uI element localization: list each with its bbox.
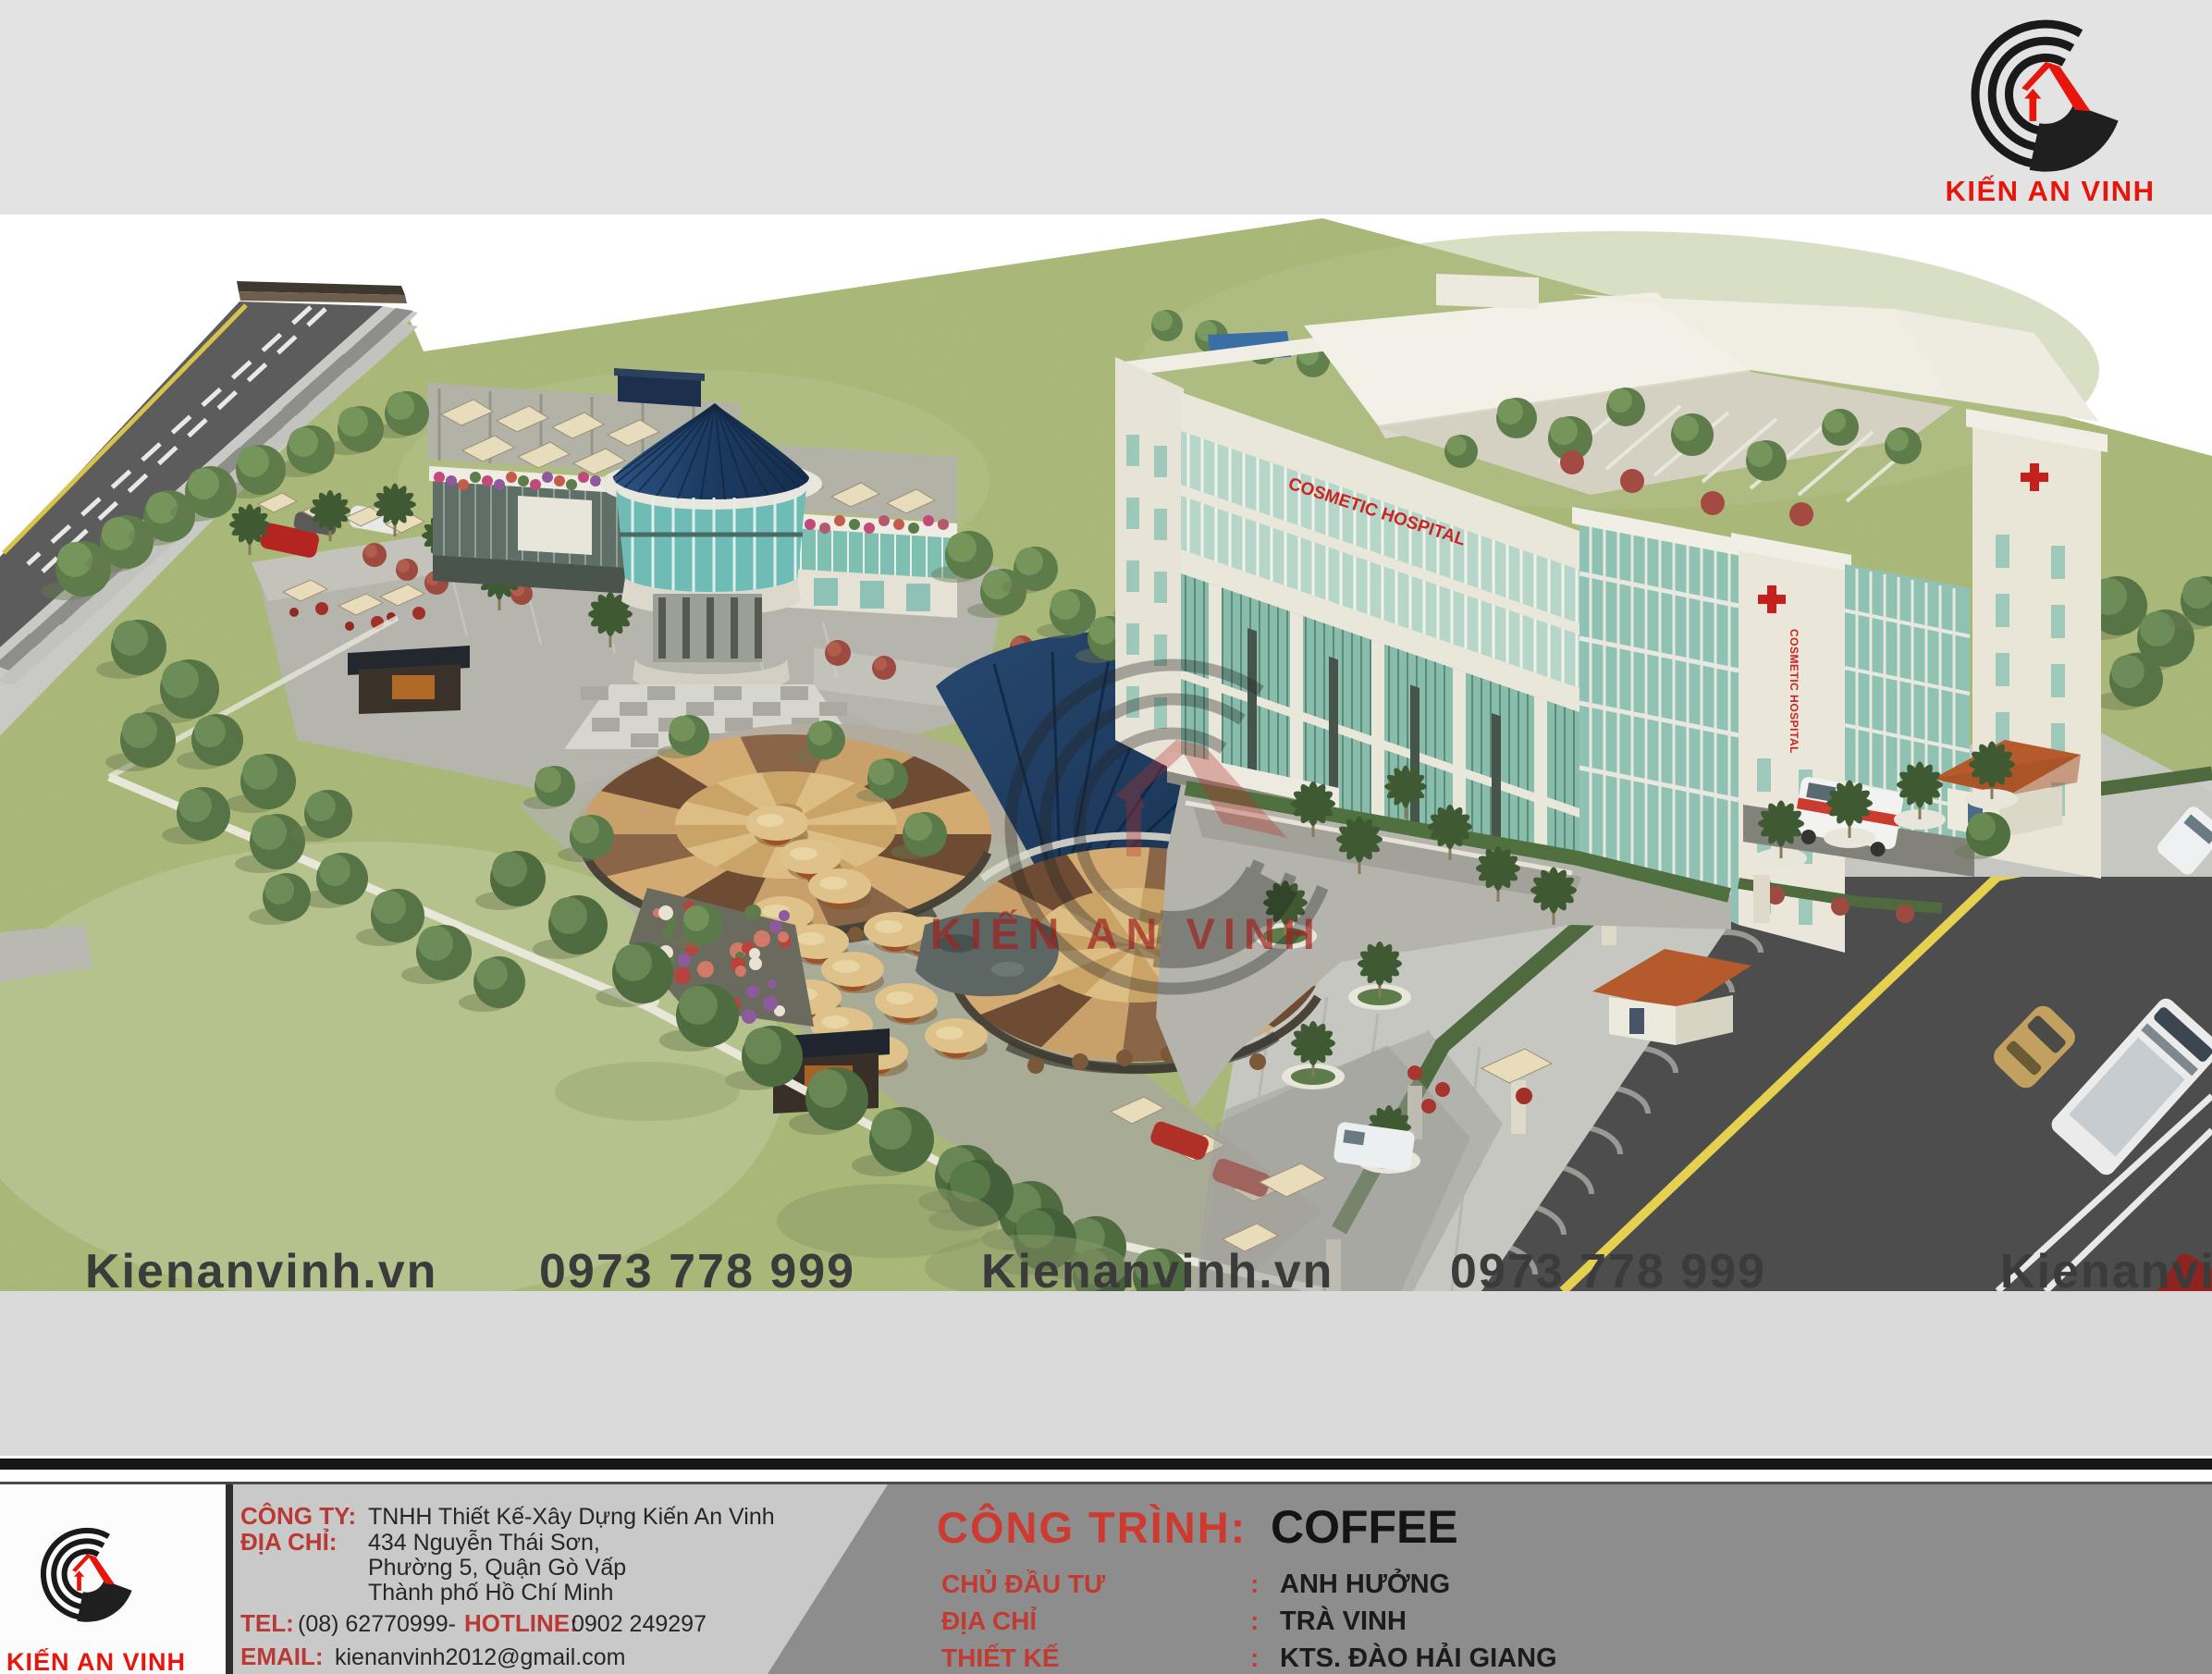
svg-text:CÔNG TY:: CÔNG TY: [240, 1502, 356, 1530]
svg-text:KIẾN AN VINH: KIẾN AN VINH [1946, 175, 2156, 207]
svg-text:Kienanvinh.vn: Kienanvinh.vn [2000, 1245, 2212, 1299]
svg-text:THIẾT KẾ: THIẾT KẾ [941, 1643, 1060, 1672]
svg-text:Thành phố Hồ Chí Minh: Thành phố Hồ Chí Minh [368, 1580, 613, 1606]
svg-text:Phường 5, Quận Gò Vấp: Phường 5, Quận Gò Vấp [368, 1555, 626, 1581]
svg-text:KIẾN AN VINH: KIẾN AN VINH [930, 909, 1323, 958]
svg-text:KTS. ĐÀO HẢI GIANG: KTS. ĐÀO HẢI GIANG [1280, 1642, 1557, 1673]
svg-text:CÔNG TRÌNH:: CÔNG TRÌNH: [937, 1503, 1247, 1552]
svg-text:ĐỊA CHỈ: ĐỊA CHỈ [941, 1606, 1037, 1635]
svg-text::: : [1250, 1569, 1259, 1598]
svg-text:ĐỊA CHỈ:: ĐỊA CHỈ: [240, 1528, 337, 1556]
svg-text:0902 249297: 0902 249297 [571, 1611, 707, 1637]
svg-text:KIẾN AN VINH: KIẾN AN VINH [6, 1647, 186, 1674]
svg-text:EMAIL:: EMAIL: [240, 1643, 324, 1670]
svg-text:434 Nguyễn Thái Sơn,: 434 Nguyễn Thái Sơn, [368, 1529, 600, 1556]
svg-text::: : [1250, 1606, 1259, 1635]
svg-text:Kienanvinh.vn: Kienanvinh.vn [85, 1245, 437, 1299]
svg-text:Kienanvinh.vn: Kienanvinh.vn [981, 1245, 1333, 1299]
svg-text:CHỦ ĐẦU TƯ: CHỦ ĐẦU TƯ [941, 1569, 1106, 1598]
svg-text:HOTLINE:: HOTLINE: [464, 1609, 578, 1637]
svg-text:0973 778 999: 0973 778 999 [539, 1245, 855, 1299]
svg-text::: : [1250, 1643, 1259, 1672]
svg-text:TEL:: TEL: [240, 1609, 294, 1637]
svg-text:COSMETIC HOSPITAL: COSMETIC HOSPITAL [1788, 629, 1800, 754]
svg-text:TRÀ VINH: TRÀ VINH [1280, 1605, 1407, 1636]
svg-text:(08) 62770999-: (08) 62770999- [298, 1611, 456, 1637]
svg-text:ANH HƯỞNG: ANH HƯỞNG [1280, 1568, 1450, 1599]
svg-text:TNHH Thiết Kế-Xây Dựng Kiến An: TNHH Thiết Kế-Xây Dựng Kiến An Vinh [368, 1504, 775, 1530]
svg-text:kienanvinh2012@gmail.com: kienanvinh2012@gmail.com [335, 1644, 625, 1670]
svg-text:COFFEE: COFFEE [1271, 1501, 1458, 1553]
svg-text:0973 778 999: 0973 778 999 [1450, 1245, 1766, 1299]
